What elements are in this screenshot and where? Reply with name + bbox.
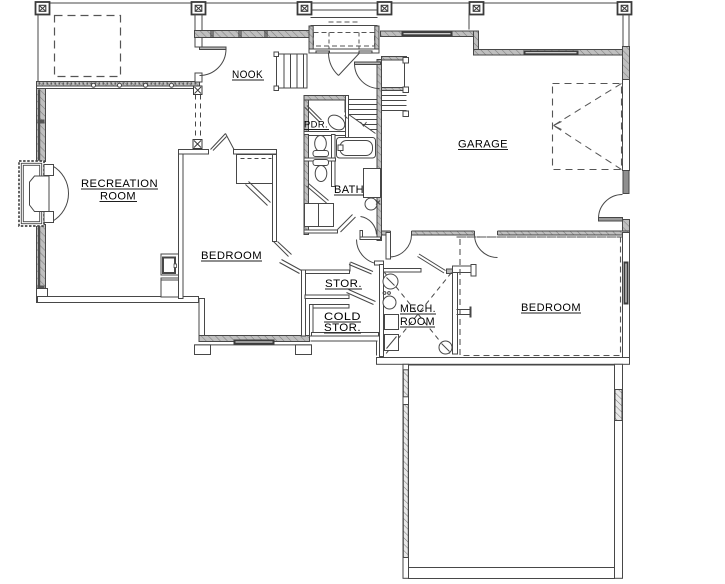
svg-text:STOR.: STOR. bbox=[325, 278, 362, 290]
svg-text:BATH: BATH bbox=[334, 184, 364, 196]
svg-text:ROOM: ROOM bbox=[100, 191, 136, 203]
svg-text:PDR.: PDR. bbox=[304, 120, 328, 131]
svg-text:NOOK: NOOK bbox=[232, 69, 263, 81]
svg-text:BEDROOM: BEDROOM bbox=[201, 250, 262, 262]
svg-text:BEDROOM: BEDROOM bbox=[521, 302, 581, 314]
svg-text:GARAGE: GARAGE bbox=[458, 139, 508, 151]
svg-text:MECH.: MECH. bbox=[400, 303, 436, 315]
svg-text:STOR.: STOR. bbox=[324, 322, 361, 334]
svg-text:ROOM: ROOM bbox=[400, 316, 435, 328]
svg-text:RECREATION: RECREATION bbox=[81, 178, 158, 190]
